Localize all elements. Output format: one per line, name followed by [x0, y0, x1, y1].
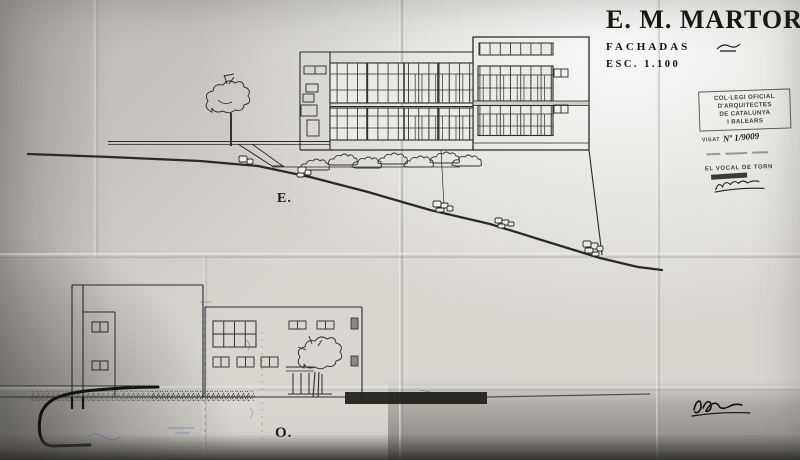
official-stamp: COL·LEGI OFICIAL D'ARQUITECTES DE CATALU… [698, 88, 794, 200]
east-elevation-label: E. [277, 191, 292, 206]
tree-sketch-lower [286, 336, 342, 397]
pencil-flourish-mark [716, 41, 742, 53]
stamp-org-line: I BALEARS [702, 117, 788, 128]
visat-number: Nº 1/9009 [723, 131, 760, 144]
title-block: E. M. MARTOREL FACHADAS ESC. 1.100 [606, 6, 800, 70]
stamp-signature [713, 177, 780, 195]
project-title: E. M. MARTOREL [606, 6, 800, 35]
stamp-box: COL·LEGI OFICIAL D'ARQUITECTES DE CATALU… [698, 88, 791, 131]
east-elevation-building [300, 37, 589, 150]
stamp-illegible-dateline [706, 143, 793, 164]
tree-sketch-upper [206, 74, 250, 146]
stamp-official-title: EL VOCAL DE TORN [705, 164, 793, 173]
drawing-type-label: FACHADAS [606, 41, 690, 53]
west-elevation-building [0, 285, 650, 446]
west-elevation-label: O. [275, 425, 292, 441]
architect-signature [692, 401, 750, 416]
visat-label: VISAT [702, 137, 720, 144]
blue-pencil-marks [88, 300, 262, 445]
drawing-scale-label: ESC. 1.100 [606, 59, 800, 70]
architectural-drawing-photo: E. O. E. M. MARTOREL FACHADAS ESC. 1.100… [0, 0, 800, 460]
